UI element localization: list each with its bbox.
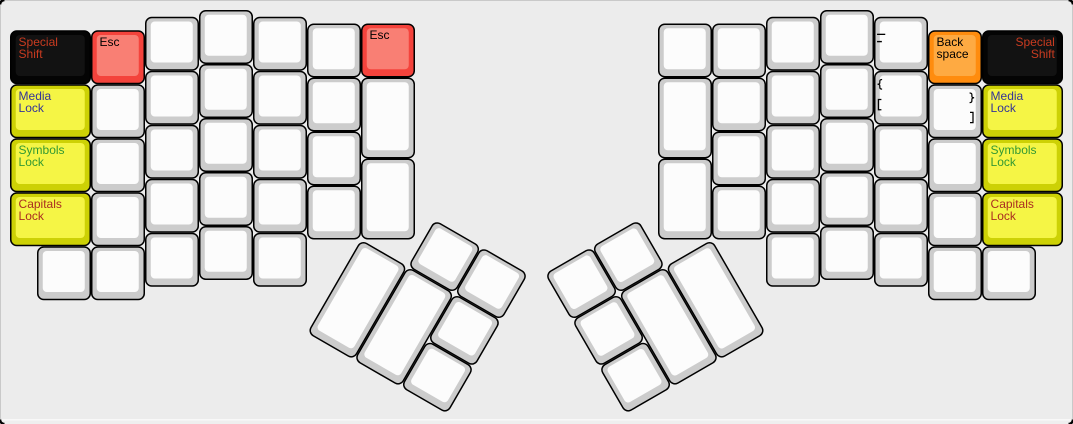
svg-text:Esc: Esc [100, 35, 120, 49]
svg-text:Shift: Shift [1031, 47, 1056, 61]
svg-text:Lock: Lock [19, 155, 45, 169]
svg-text:Lock: Lock [19, 101, 45, 115]
svg-text:Lock: Lock [991, 155, 1017, 169]
svg-text:Shift: Shift [19, 47, 44, 61]
svg-text:Lock: Lock [991, 101, 1017, 115]
svg-text:space: space [937, 47, 969, 61]
svg-text:Lock: Lock [19, 209, 45, 223]
svg-text:Esc: Esc [370, 28, 390, 42]
svg-text:Lock: Lock [991, 209, 1017, 223]
